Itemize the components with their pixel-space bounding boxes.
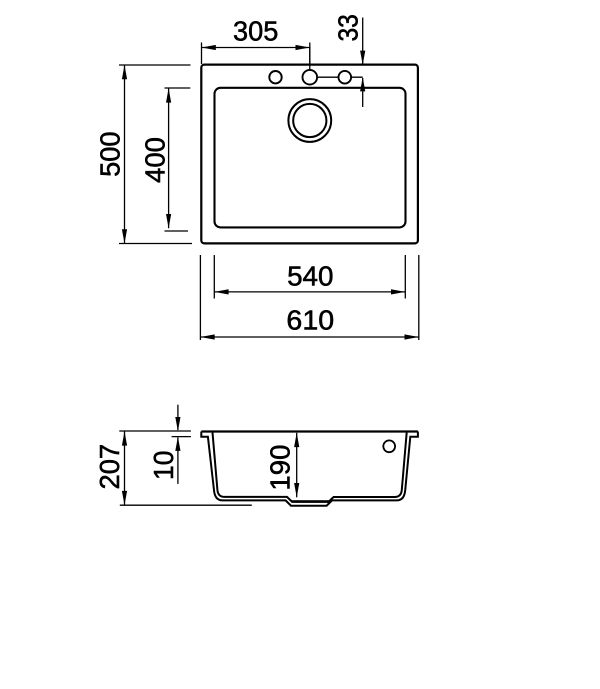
svg-text:540: 540 [287,261,333,292]
svg-text:610: 610 [286,305,334,336]
svg-text:33: 33 [333,14,364,41]
svg-text:10: 10 [148,451,179,480]
svg-text:190: 190 [264,445,295,491]
svg-text:500: 500 [95,132,126,177]
svg-text:207: 207 [94,444,125,490]
svg-text:400: 400 [139,137,170,183]
svg-text:305: 305 [233,15,278,46]
